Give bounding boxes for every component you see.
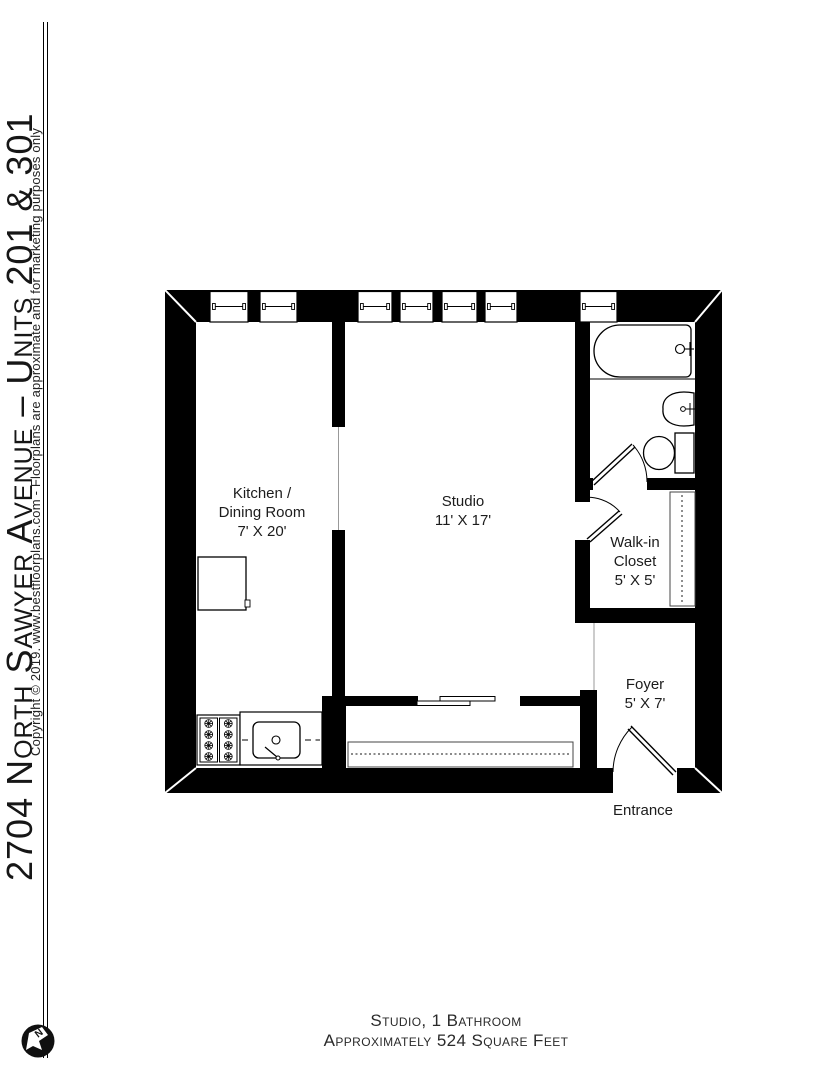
window-icon [358,292,392,323]
kitchen-sink-icon [253,722,300,760]
bathroom-door-icon [591,444,647,485]
window-icon [400,292,433,323]
room-name: Studio [435,492,491,511]
window-icon [442,292,477,323]
closet-shelf-icon [348,742,573,767]
kitchen-counter-icon [240,712,322,765]
wall-wic-foyer [575,608,695,623]
wall-foyer-left [580,690,597,768]
closet-rod-icon [670,492,695,606]
bathroom-sink-icon [663,392,695,426]
room-dimensions: 5' X 5' [610,571,659,590]
wall-kitchen-studio-lower [332,530,345,696]
wall-kitchen-closet [322,696,346,768]
tub-faucet [676,345,685,354]
room-label-studio: Studio 11' X 17' [435,492,491,530]
floorplan-page: { "sidebar": { "title": "2704 North Sawy… [0,0,835,1080]
sliding-closet-doors-icon [417,697,495,706]
entrance-label: Entrance [613,802,673,819]
summary-rooms: Studio, 1 Bathroom [60,1011,832,1031]
wall-bathroom-bottom-right [647,478,695,490]
bathtub-icon [590,325,695,379]
wall-kitchen-studio-upper [332,322,345,427]
room-name: Kitchen / [219,484,306,503]
window-icon [210,292,248,323]
sidebar-divider [43,22,48,1058]
entrance-opening [613,767,677,795]
room-dimensions: 5' X 7' [625,694,666,713]
refrigerator-icon [198,557,250,610]
room-name: Foyer [625,675,666,694]
summary-area: Approximately 524 Square Feet [60,1031,832,1051]
room-dimensions: 7' X 20' [219,522,306,541]
sink-drain [272,736,280,744]
room-name: Walk-in [610,533,659,552]
room-label-foyer: Foyer 5' X 7' [625,675,666,713]
wall-closet-right [520,696,580,706]
fridge-handle [245,600,250,607]
room-label-walk-in-closet: Walk-in Closet 5' X 5' [610,533,659,590]
room-name: Closet [610,552,659,571]
wall-closet-left [346,696,418,706]
room-dimensions: 11' X 17' [435,511,491,530]
range-icon [197,715,240,765]
window-icon [580,292,617,323]
copyright-text: Copyright © 2019. www.bestfloorplans.com… [28,24,44,756]
window-icon [485,292,517,323]
wall-bathroom-bottom-left [575,478,593,490]
window-icon [260,292,297,323]
north-compass-icon: N [18,1021,58,1061]
wall-studio-bathroom [575,322,590,502]
plan-summary: Studio, 1 Bathroom Approximately 524 Squ… [60,1011,832,1051]
room-name: Dining Room [219,503,306,522]
toilet-icon [644,433,695,473]
room-label-kitchen: Kitchen / Dining Room 7' X 20' [219,484,306,541]
